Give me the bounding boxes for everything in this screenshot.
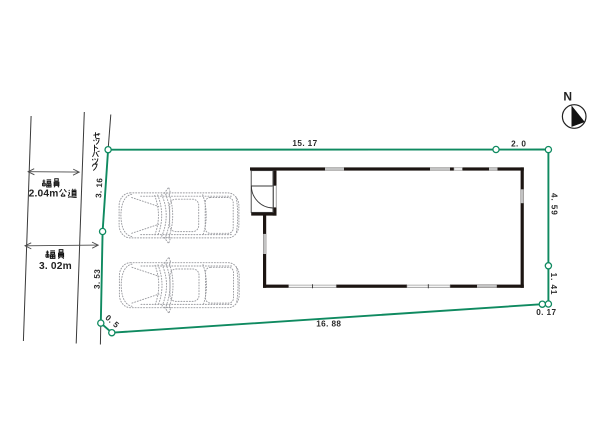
svg-text:4. 59: 4. 59 <box>549 193 558 216</box>
svg-text:15. 17: 15. 17 <box>292 139 317 148</box>
svg-text:2.04m: 2.04m <box>29 189 59 200</box>
svg-text:1. 41: 1. 41 <box>549 273 558 296</box>
svg-text:3. 53: 3. 53 <box>93 269 102 289</box>
svg-text:3. 16: 3. 16 <box>94 177 104 198</box>
svg-text:0. 17: 0. 17 <box>536 308 556 317</box>
svg-text:2. 0: 2. 0 <box>511 139 526 148</box>
svg-text:3. 02m: 3. 02m <box>39 261 72 272</box>
svg-text:N: N <box>563 90 572 104</box>
svg-text:16. 88: 16. 88 <box>316 320 341 329</box>
